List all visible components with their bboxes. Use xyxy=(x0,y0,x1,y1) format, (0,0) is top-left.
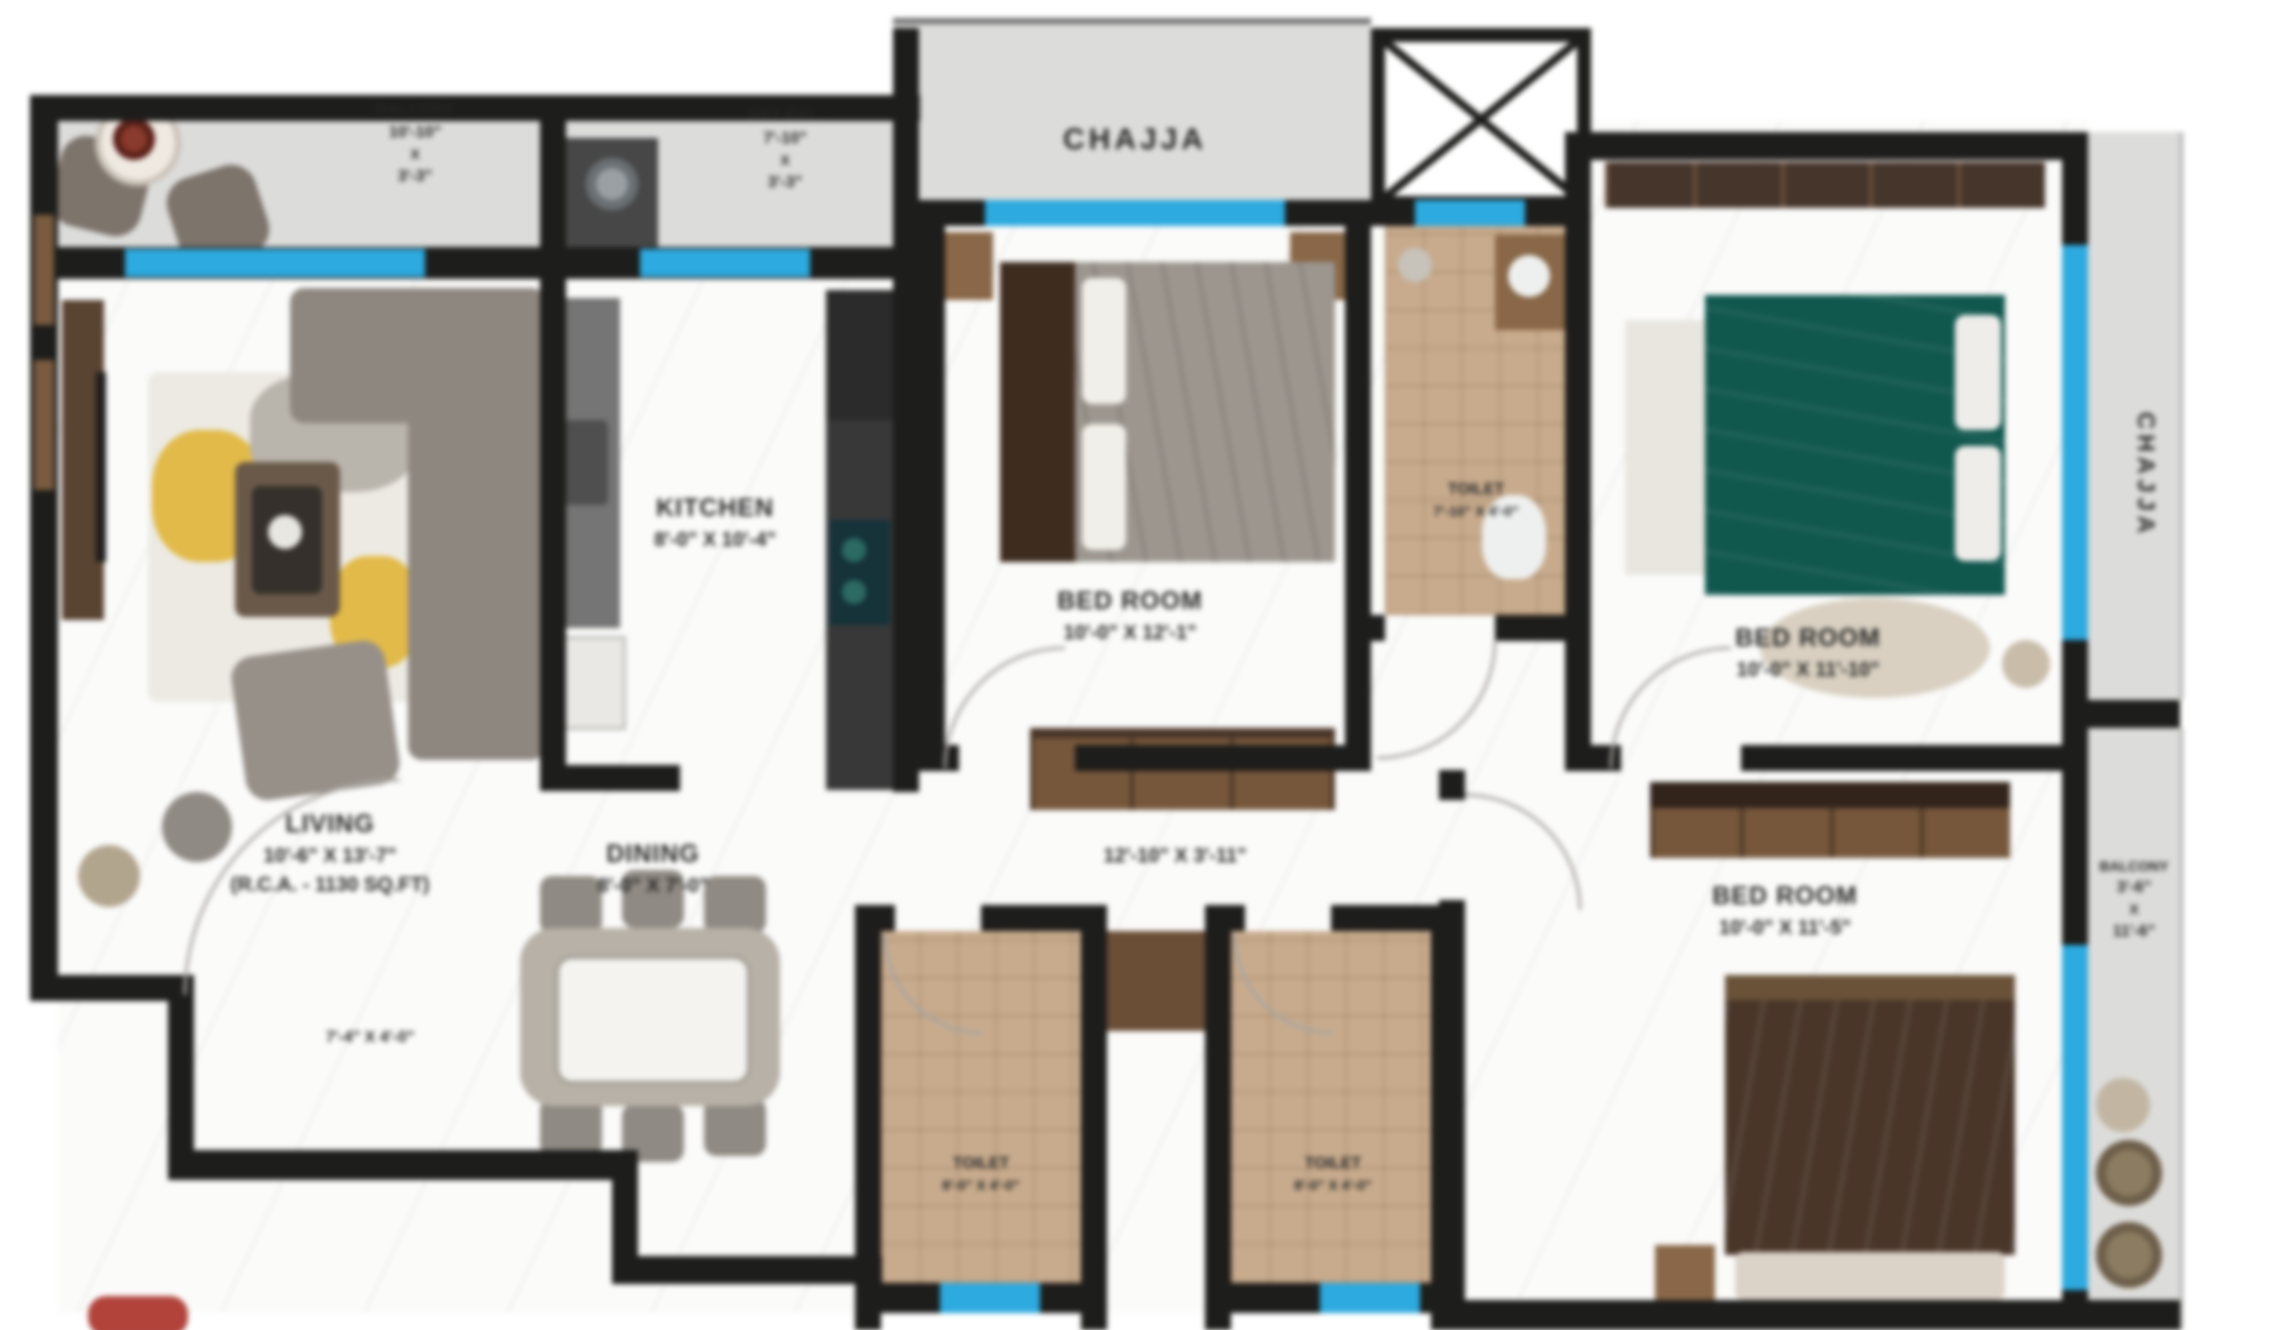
room-dim: 8'-0" X 4'-0" xyxy=(896,1175,1066,1195)
room-dim: 7'-10" X 4'-0" xyxy=(1396,501,1556,521)
room-dim: 10'-0" X 11'-10" xyxy=(1688,656,1928,685)
room-area: (R.C.A. - 1130 SQ.FT) xyxy=(180,871,480,900)
room-dim: X xyxy=(700,150,870,170)
room-dim: 3'-6" xyxy=(2090,876,2178,899)
room-name: TOILET xyxy=(1396,478,1556,501)
living-label: LIVING 10'-6" X 13'-7" (R.C.A. - 1130 SQ… xyxy=(180,806,480,900)
room-dim: 10'-0" X 11'-5" xyxy=(1665,914,1905,943)
dry-balcony-label: DRY BAL. 7'-10" X 3'-3" xyxy=(700,104,870,194)
passage-dim-label: 12'-10" X 3'-11" xyxy=(1030,842,1320,871)
room-dim: 8'-0" X 7'-0" xyxy=(558,872,748,901)
bedroom-bottom-right-label: BED ROOM 10'-0" X 11'-5" xyxy=(1665,878,1905,943)
toilet-common-label: TOILET 7'-10" X 4'-0" xyxy=(1396,478,1556,521)
room-dim: 7'-10" xyxy=(700,127,870,150)
room-name: DRY BAL. xyxy=(700,104,870,127)
room-dim: X xyxy=(2090,899,2178,919)
room-dim: 8'-0" X 10'-4" xyxy=(600,526,830,555)
room-name: BED ROOM xyxy=(1688,620,1928,656)
balcony-top-left-label: BALCONY 10'-10" X 3'-3" xyxy=(330,98,500,188)
room-dim: 8'-0" X 4'-0" xyxy=(1248,1175,1418,1195)
room-dim: 3'-3" xyxy=(330,165,500,188)
room-dim: 10'-6" X 13'-7" xyxy=(180,842,480,871)
door-swing-arcs xyxy=(0,0,2275,1330)
room-dim: 3'-3" xyxy=(700,171,870,194)
room-name: TOILET xyxy=(1248,1152,1418,1175)
logo-fragment xyxy=(88,1296,188,1330)
kitchen-label: KITCHEN 8'-0" X 10'-4" xyxy=(600,490,830,555)
toilet-1-label: TOILET 8'-0" X 4'-0" xyxy=(896,1152,1066,1195)
room-name: BALCONY xyxy=(330,98,500,121)
chajja-top-label: CHAJJA xyxy=(1015,118,1255,162)
toilet-2-label: TOILET 8'-0" X 4'-0" xyxy=(1248,1152,1418,1195)
room-dim: X xyxy=(330,144,500,164)
chajja-right-label: CHAJJA xyxy=(2106,370,2162,580)
bedroom-center-label: BED ROOM 10'-0" X 12'-1" xyxy=(1010,583,1250,648)
bedroom-top-right-label: BED ROOM 10'-0" X 11'-10" xyxy=(1688,620,1928,685)
room-name: BED ROOM xyxy=(1665,878,1905,914)
room-name: BALCONY xyxy=(2090,856,2178,876)
room-name: DINING xyxy=(558,836,748,872)
room-dim: 11'-6" xyxy=(2090,920,2178,943)
foyer-dim-label: 7'-4" X 4'-0" xyxy=(280,1026,460,1049)
room-name: LIVING xyxy=(180,806,480,842)
dining-label: DINING 8'-0" X 7'-0" xyxy=(558,836,748,901)
floor-plan: BALCONY 10'-10" X 3'-3" DRY BAL. 7'-10" … xyxy=(0,0,2275,1330)
room-name: TOILET xyxy=(896,1152,1066,1175)
room-name: BED ROOM xyxy=(1010,583,1250,619)
room-name: KITCHEN xyxy=(600,490,830,526)
room-dim: 10'-0" X 12'-1" xyxy=(1010,619,1250,648)
balcony-right-label: BALCONY 3'-6" X 11'-6" xyxy=(2090,856,2178,943)
floor-plan-screenshot: BALCONY 10'-10" X 3'-3" DRY BAL. 7'-10" … xyxy=(0,0,2275,1330)
room-dim: 10'-10" xyxy=(330,121,500,144)
